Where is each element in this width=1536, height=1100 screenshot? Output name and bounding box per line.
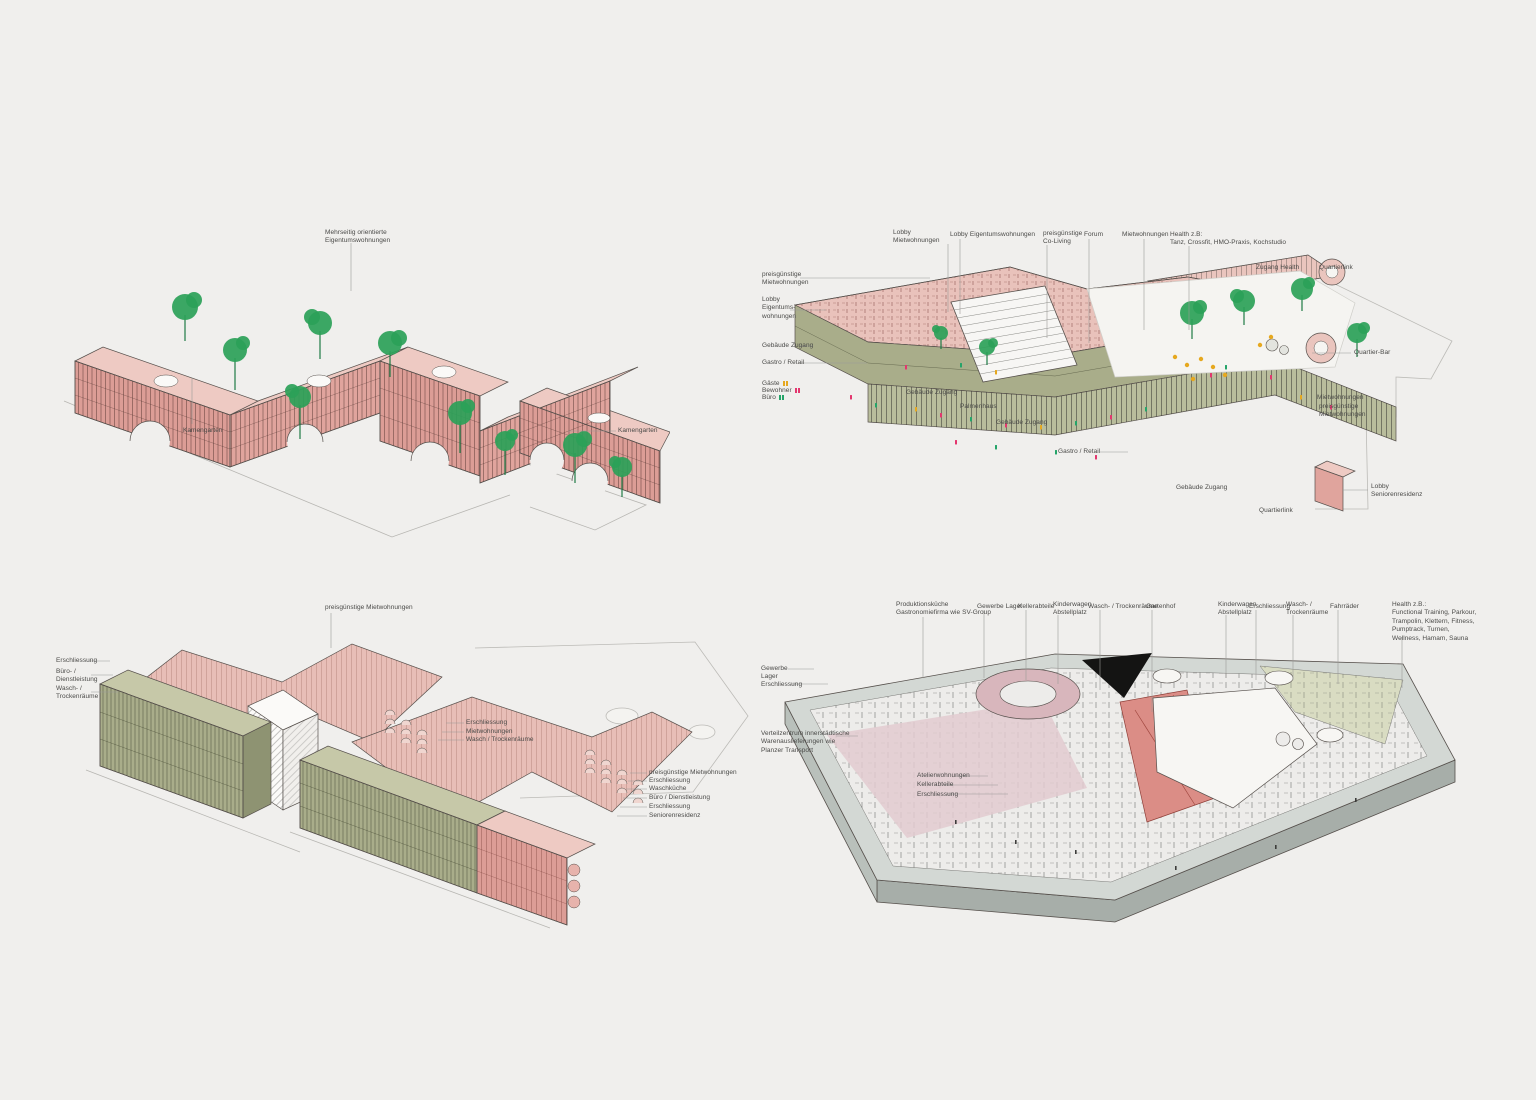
axon-basement-drawing (755, 640, 1465, 930)
annotation-label: Forum (1084, 231, 1103, 239)
annotation-label: LobbyMietwohnungen (893, 229, 940, 246)
annotation-label: Gewerbe Lager (977, 603, 1022, 611)
panel-basement (755, 640, 1465, 930)
axon-upper-floors-drawing (50, 245, 670, 545)
panel-standard-floors (50, 620, 750, 930)
annotation-label: preisgünstige Mietwohnungen (325, 604, 413, 612)
leader-lines (0, 0, 1536, 1100)
annotation-label: ProduktionskücheGastronomiefirma wie SV-… (896, 601, 991, 618)
axon-ground-floor-drawing (755, 245, 1455, 535)
annotation-label: Gartenhof (1146, 603, 1175, 611)
annotation-label: Erschliessung (1249, 603, 1290, 611)
annotation-label: Mehrseitig orientierteEigentumswohnungen (325, 229, 390, 246)
axon-standard-floors-drawing (50, 620, 750, 930)
annotation-layer: Mehrseitig orientierteEigentumswohnungen… (0, 0, 1536, 1100)
senior-lobby (1315, 461, 1355, 511)
annotation-label: Kellerabteile (1018, 603, 1054, 611)
annotation-label: Mietwohnungen (1122, 231, 1169, 239)
annotation-label: KinderwagenAbstellplatz (1053, 601, 1092, 618)
annotation-label: Health z.B.:Functional Training, Parkour… (1392, 601, 1476, 643)
annotation-label: Fahrräder (1330, 603, 1359, 611)
diagram-canvas: Mehrseitig orientierteEigentumswohnungen… (0, 0, 1536, 1100)
spiral-ramp (976, 669, 1080, 719)
annotation-label: Wasch- / Trockenräume (1088, 603, 1158, 611)
panel-ground-floor (755, 245, 1455, 535)
annotation-label: Lobby Eigentumswohnungen (950, 231, 1035, 239)
annotation-label: Wasch- /Trockenräume (1286, 601, 1328, 618)
panel-upper-floors (50, 245, 670, 545)
annotation-label: KinderwagenAbstellplatz (1218, 601, 1257, 618)
